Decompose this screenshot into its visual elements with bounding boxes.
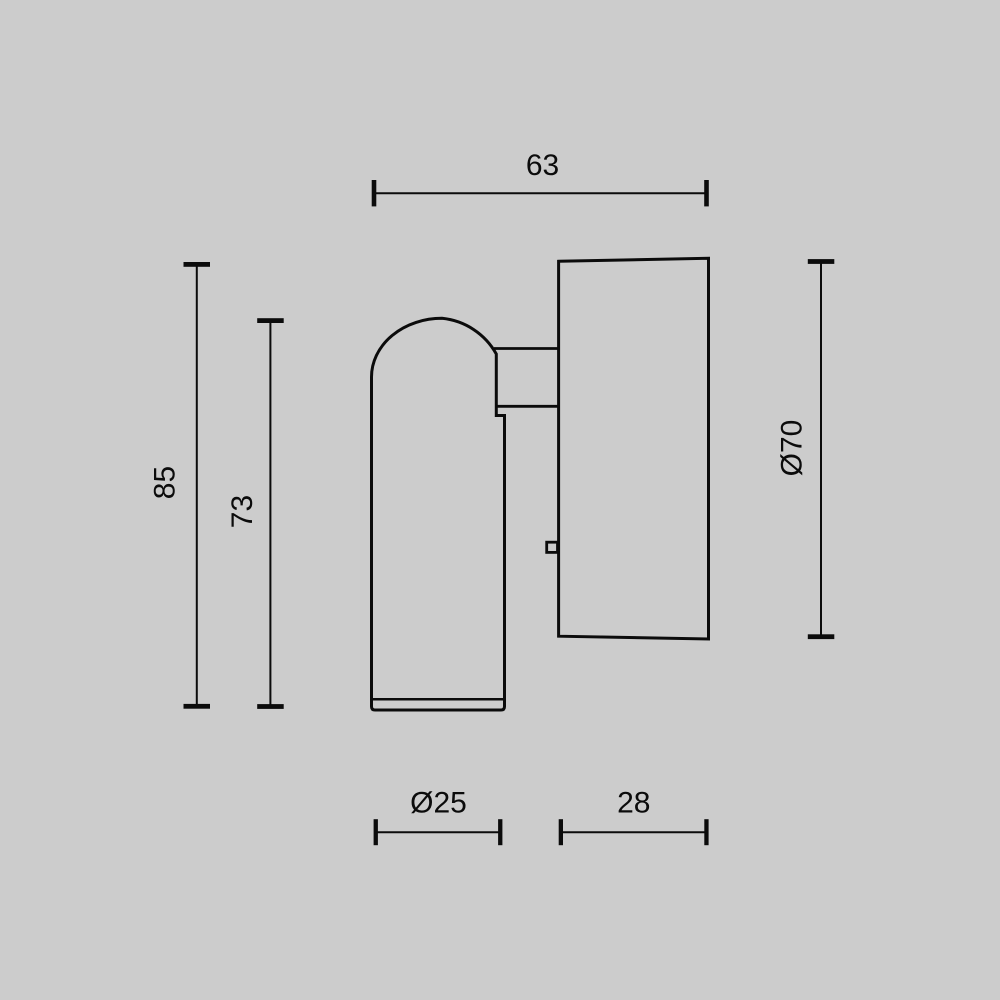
svg-text:85: 85 [149,466,182,499]
svg-text:63: 63 [526,149,559,182]
svg-text:28: 28 [617,786,650,819]
svg-text:73: 73 [226,495,259,528]
svg-text:Ø25: Ø25 [410,786,467,819]
svg-text:Ø70: Ø70 [776,420,809,477]
